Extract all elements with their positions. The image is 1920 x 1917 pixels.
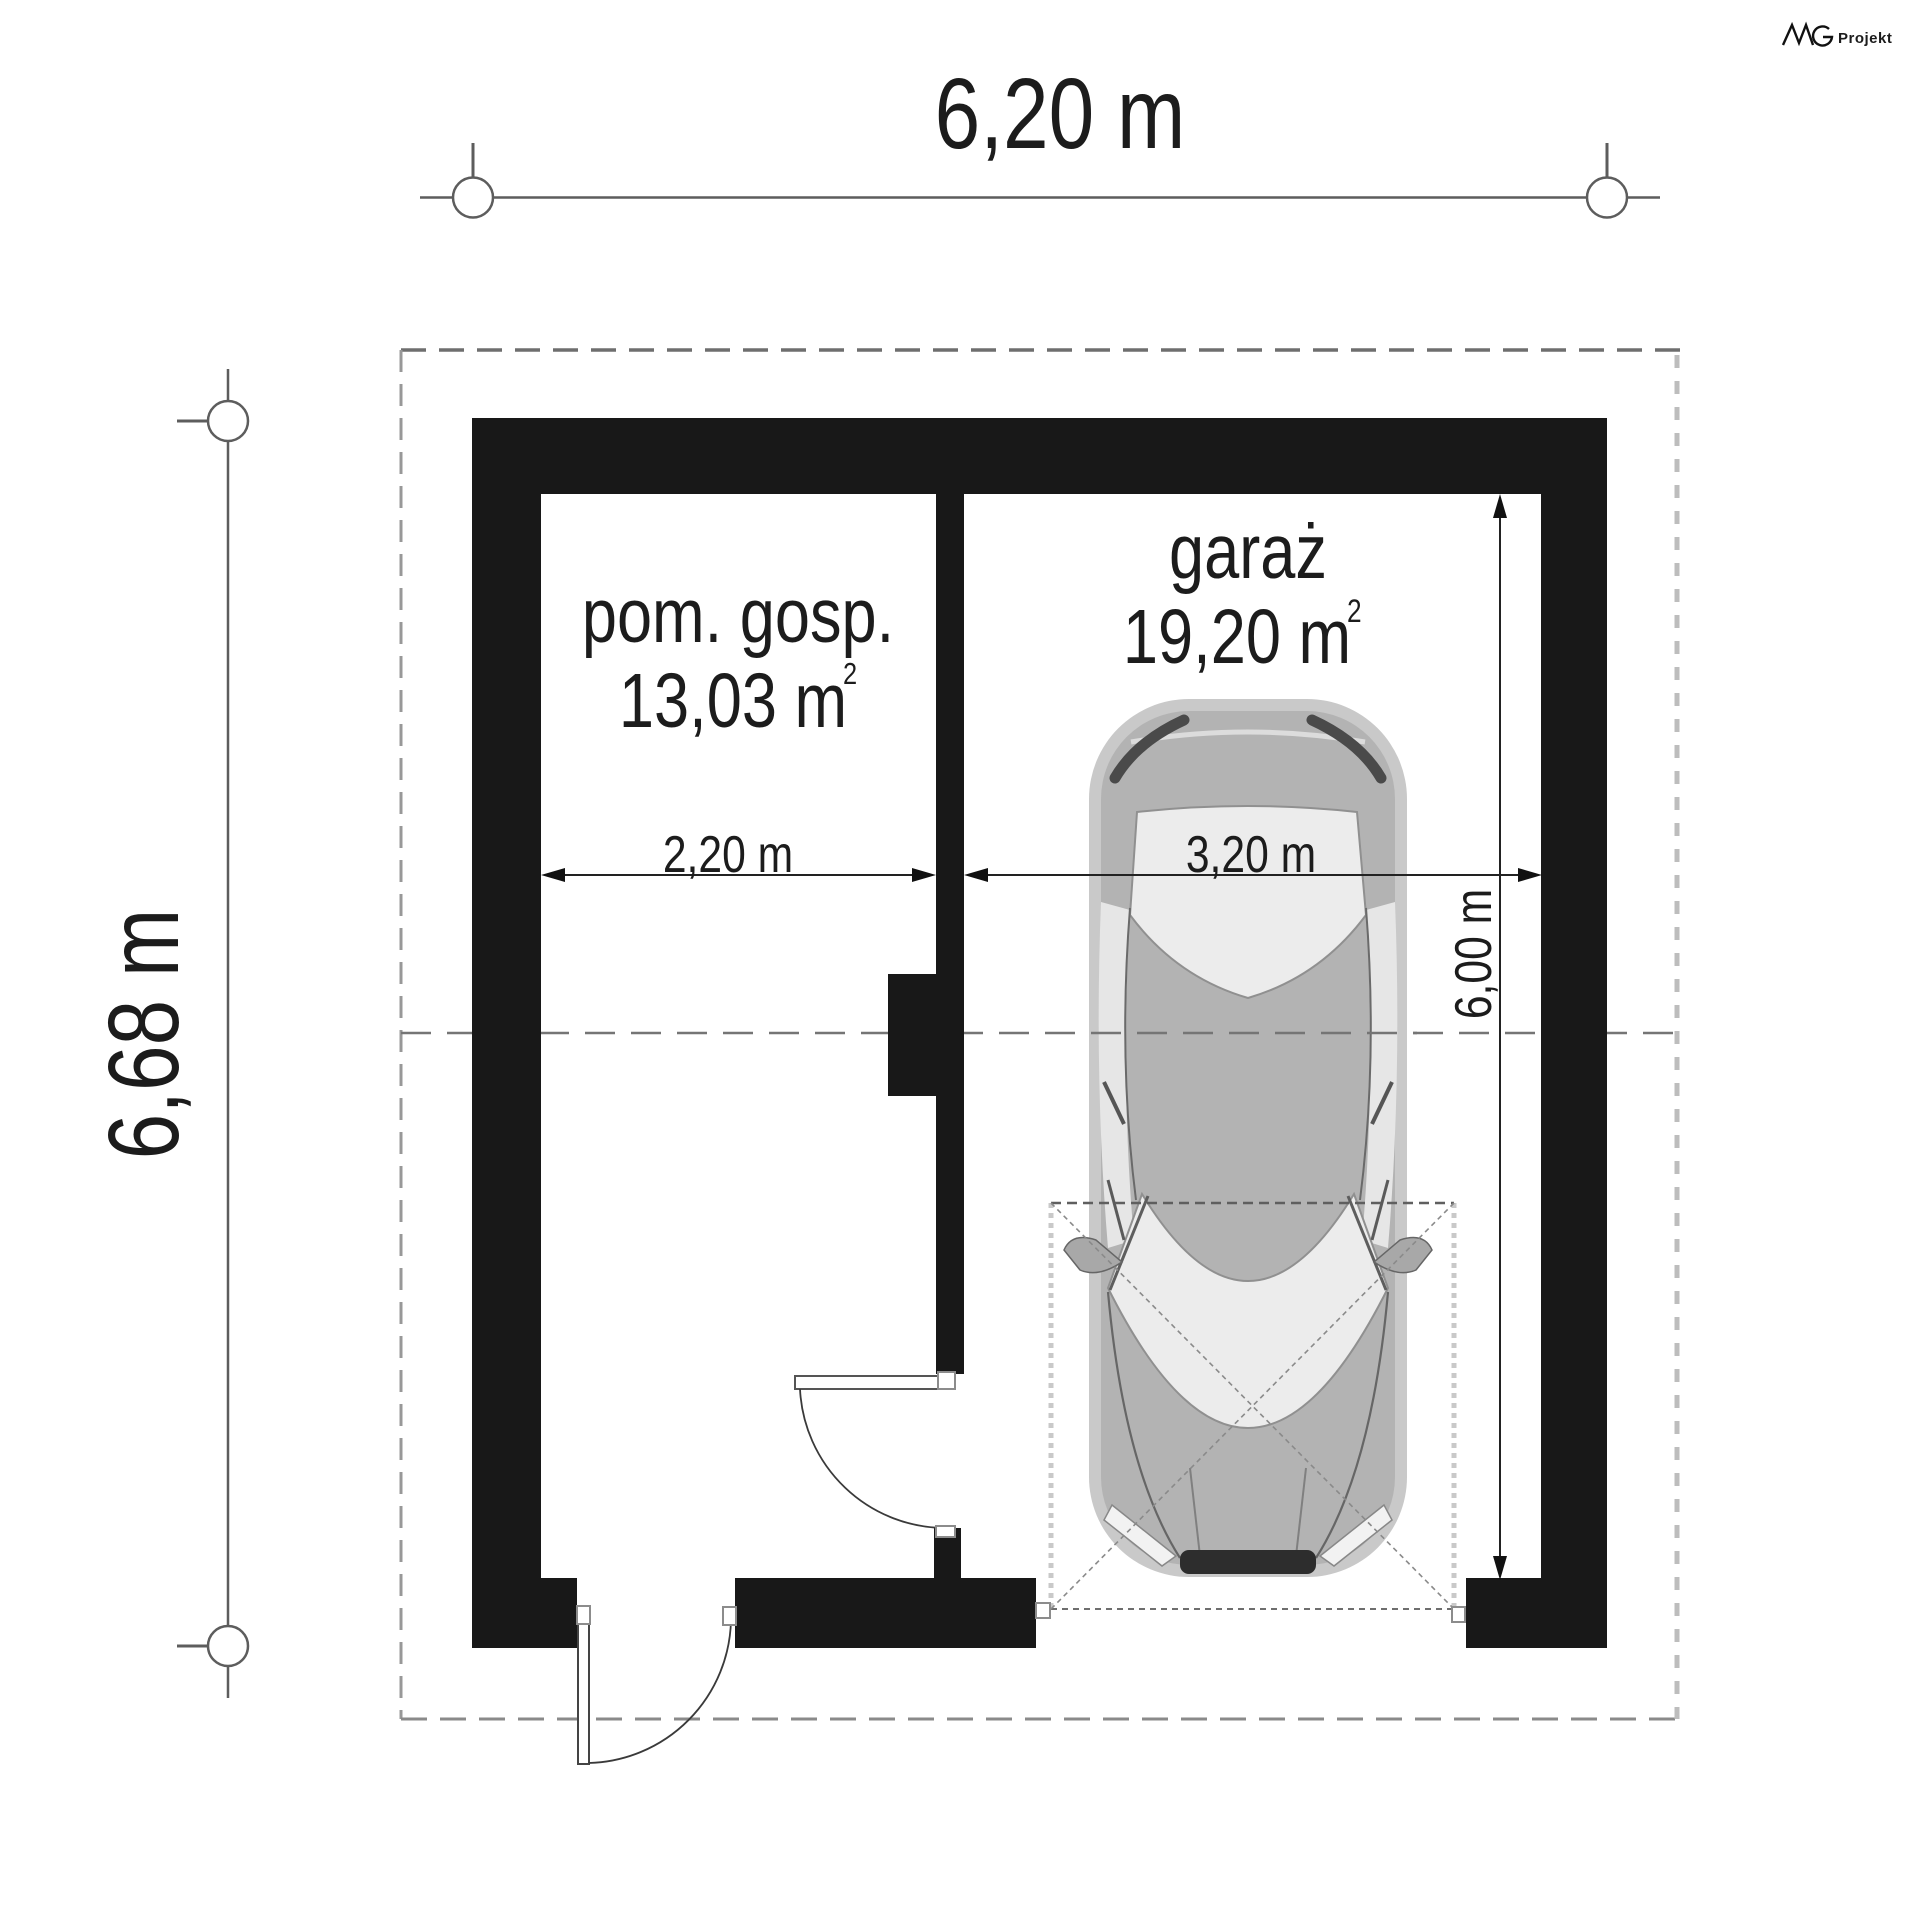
svg-text:garaż: garaż: [1169, 508, 1327, 594]
svg-text:19,20 m: 19,20 m: [1123, 593, 1351, 679]
svg-text:6,68 m: 6,68 m: [88, 909, 200, 1160]
svg-text:13,03 m: 13,03 m: [619, 657, 847, 743]
svg-text:Projekt: Projekt: [1838, 30, 1892, 47]
svg-text:2: 2: [1347, 595, 1362, 630]
svg-text:2,20 m: 2,20 m: [663, 826, 793, 884]
svg-text:6,20 m: 6,20 m: [935, 58, 1186, 170]
svg-text:3,20 m: 3,20 m: [1186, 826, 1316, 884]
svg-text:pom. gosp.: pom. gosp.: [582, 572, 894, 658]
svg-text:6,00 m: 6,00 m: [1445, 889, 1503, 1019]
svg-text:2: 2: [843, 657, 857, 692]
